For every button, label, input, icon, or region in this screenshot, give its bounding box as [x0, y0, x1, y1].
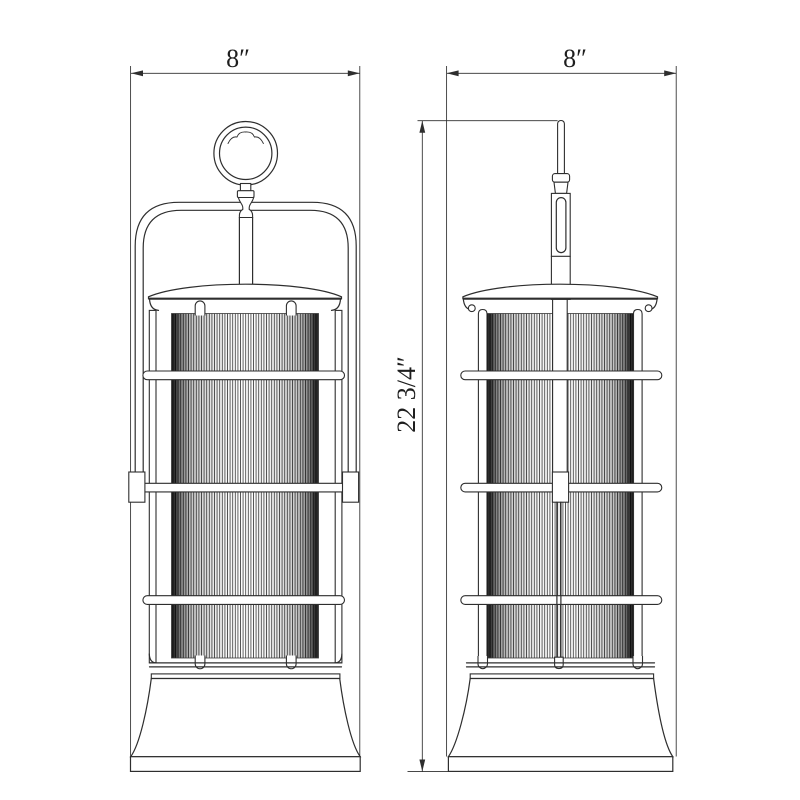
cage-band-bottom: [143, 596, 345, 605]
canopy-cap: [149, 284, 342, 310]
cage-band-top: [143, 371, 345, 380]
side-view: [448, 121, 672, 772]
cage-band-top: [461, 371, 662, 380]
finial-stem: [237, 184, 254, 300]
hang-rod: [558, 121, 565, 177]
drawing-canvas: 8″ 8″ 22 3/4″: [0, 0, 800, 800]
arrowhead-right: [664, 70, 676, 76]
stem-turning: [238, 198, 253, 218]
arrowhead-left: [447, 70, 459, 76]
front-view: [129, 122, 360, 772]
arrowhead-right: [348, 70, 360, 76]
rod-neck: [554, 182, 568, 193]
hanging-ring: [214, 122, 278, 186]
ring-outer: [214, 122, 278, 186]
top-hook-left: [195, 301, 205, 316]
drawing-page: 8″ 8″ 22 3/4″: [0, 0, 800, 800]
cage-band-middle: [141, 483, 346, 492]
height-label: 22 3/4″: [392, 356, 421, 433]
arrowhead-left: [131, 70, 143, 76]
finial-neck: [240, 184, 250, 191]
base-plinth: [131, 757, 361, 772]
collar-ring: [151, 674, 340, 679]
cap-curl-left: [468, 305, 475, 312]
bracket-left: [129, 472, 145, 502]
bracket-center: [552, 472, 568, 502]
yoke-arm-upper: [551, 193, 570, 299]
base-plinth: [448, 757, 672, 772]
bell-base: [131, 679, 361, 757]
arrowhead-up: [419, 121, 425, 133]
finial-collar: [237, 191, 254, 198]
side-width-label: 8″: [563, 44, 587, 73]
front-width-label: 8″: [226, 44, 250, 73]
yoke-arm-lower: [553, 299, 568, 472]
cap-curl-right: [645, 305, 652, 312]
top-hook-right: [286, 301, 296, 316]
collar-ring: [470, 674, 653, 679]
bell-base: [448, 679, 672, 757]
bracket-right: [343, 472, 359, 502]
arrowhead-down: [419, 760, 425, 772]
rod-nut: [552, 174, 569, 183]
